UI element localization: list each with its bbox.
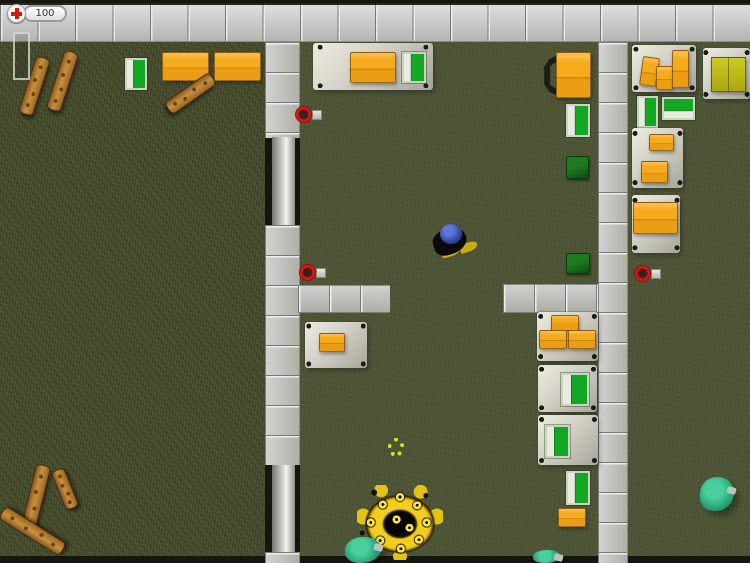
wall-left-upper bbox=[265, 42, 300, 138]
dark-green-crate bbox=[566, 156, 589, 179]
ammo-bar bbox=[13, 32, 30, 80]
orange-crate bbox=[350, 52, 396, 83]
health-value: 100 bbox=[23, 5, 67, 22]
orange-crate bbox=[633, 202, 678, 234]
orange-crate bbox=[539, 330, 567, 349]
orange-crate bbox=[656, 66, 673, 90]
orange-crate bbox=[568, 330, 596, 349]
green-bed bbox=[561, 373, 589, 406]
weapon-pickup[interactable] bbox=[295, 106, 322, 123]
green-bed bbox=[545, 425, 570, 458]
dark-green-crate bbox=[566, 253, 590, 274]
glass-door-lower[interactable] bbox=[272, 465, 295, 552]
health-indicator: 100 bbox=[7, 4, 67, 23]
weapon-pickup[interactable] bbox=[299, 264, 326, 281]
wall-branch-east bbox=[503, 284, 598, 313]
green-bed bbox=[662, 97, 695, 120]
wall-branch-west bbox=[298, 285, 390, 313]
health-cross-icon bbox=[7, 4, 26, 23]
orange-crate bbox=[641, 161, 668, 183]
yellow-crate bbox=[711, 57, 746, 92]
green-bed bbox=[125, 58, 147, 90]
yellow-marker bbox=[388, 438, 404, 456]
game-objects bbox=[0, 0, 750, 563]
wall-left-middle bbox=[265, 225, 300, 465]
orange-crate bbox=[556, 52, 591, 98]
wall-top bbox=[0, 3, 750, 42]
green-bed bbox=[637, 96, 658, 128]
orange-crate bbox=[649, 134, 674, 151]
game-viewport[interactable]: 100 bbox=[0, 0, 750, 563]
wall-left-bottom bbox=[265, 552, 300, 563]
glass-door-upper[interactable] bbox=[272, 137, 295, 225]
orange-crate bbox=[214, 52, 261, 81]
orange-crate bbox=[672, 50, 689, 88]
wall-right bbox=[598, 42, 628, 563]
weapon-pickup[interactable] bbox=[634, 265, 661, 282]
orange-crate bbox=[558, 508, 586, 527]
orange-crate bbox=[551, 315, 579, 331]
green-bed bbox=[566, 104, 590, 137]
orange-crate bbox=[319, 333, 345, 352]
player-character[interactable] bbox=[430, 220, 472, 262]
green-bed bbox=[566, 471, 590, 505]
green-bed bbox=[402, 52, 426, 83]
